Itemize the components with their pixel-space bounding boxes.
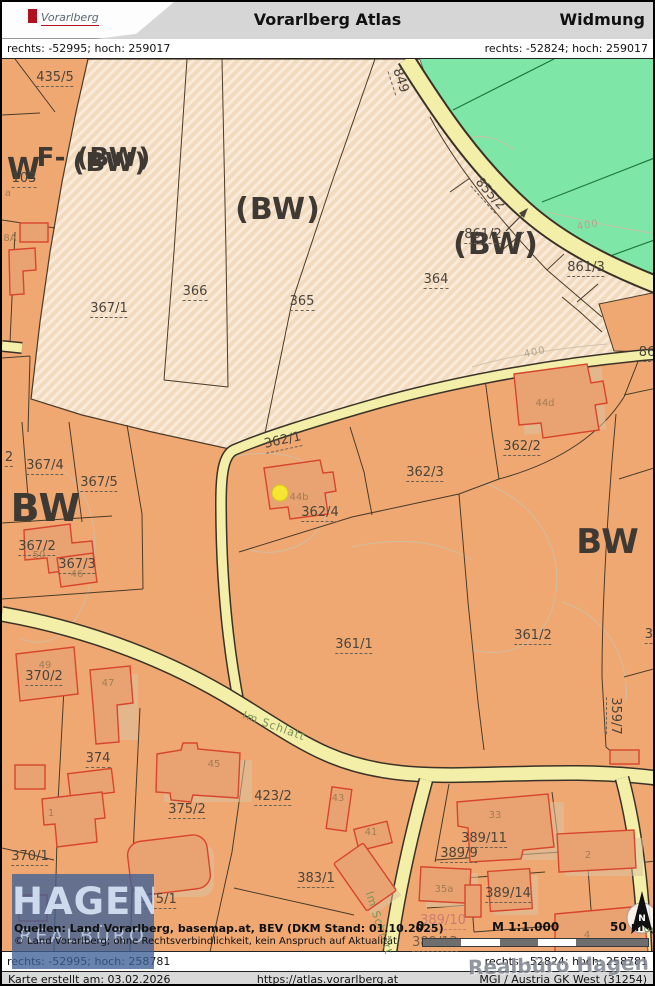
scalebar-scale: M 1:1.000: [492, 920, 559, 934]
app-title: Vorarlberg Atlas: [2, 10, 653, 29]
layer-mode-title: Widmung: [560, 10, 646, 29]
source-note: Quellen: Land Vorarlberg, basemap.at, BE…: [14, 922, 444, 947]
atlas-window: Vorarlberg Vorarlberg Atlas Widmung rech…: [0, 0, 655, 986]
watermark-name: HAGEN: [12, 880, 154, 923]
scalebar-distance: 50 m: [610, 920, 643, 934]
coord-bar-top: rechts: -52995; hoch: 259017 rechts: -52…: [2, 39, 653, 59]
source-line-1: Quellen: Land Vorarlberg, basemap.at, BE…: [14, 922, 444, 935]
selected-address-dot[interactable]: [272, 485, 288, 501]
header-bar: Vorarlberg Vorarlberg Atlas Widmung: [2, 2, 653, 40]
map-canvas[interactable]: N: [2, 59, 655, 951]
source-line-2: © Land Vorarlberg; ohne Rechtsverbindlic…: [14, 936, 444, 947]
coord-top-left: rechts: -52995; hoch: 259017: [7, 42, 170, 55]
scalebar: [422, 938, 649, 947]
coord-top-right: rechts: -52824; hoch: 259017: [485, 42, 648, 55]
corner-watermark: Realbüro Hagen: [468, 951, 649, 980]
map-graphics: N: [2, 59, 655, 951]
